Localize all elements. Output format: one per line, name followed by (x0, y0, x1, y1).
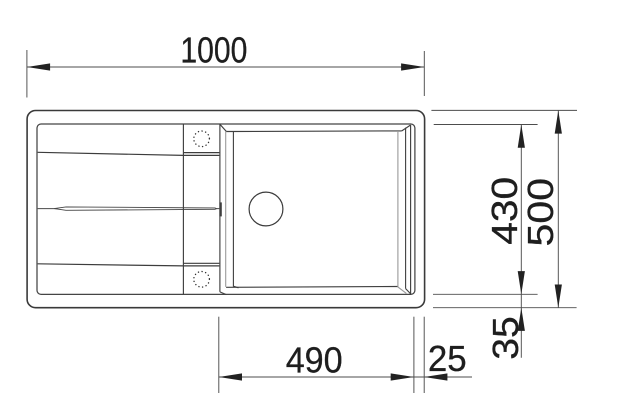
svg-text:490: 490 (286, 340, 343, 381)
svg-text:1000: 1000 (180, 30, 247, 71)
svg-text:500: 500 (520, 178, 561, 247)
svg-text:35: 35 (485, 316, 526, 360)
svg-text:25: 25 (428, 338, 467, 379)
